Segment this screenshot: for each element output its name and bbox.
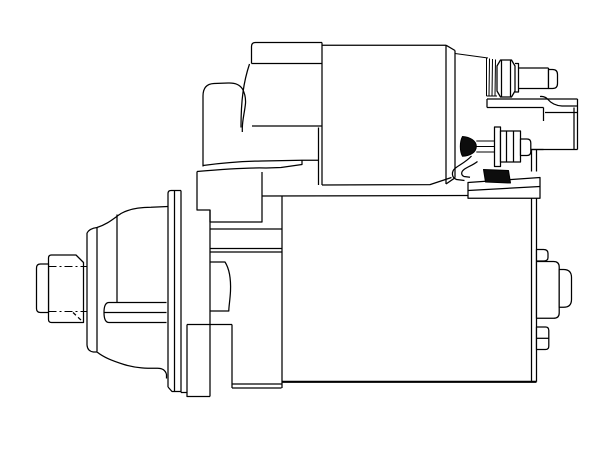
cable-inner-curve (462, 162, 478, 178)
drive-housing-slot (104, 303, 167, 323)
field-terminal-stud (460, 137, 476, 157)
serrated-washer-stack (455, 54, 497, 97)
drive-housing-front-rim (87, 228, 97, 353)
bracket-edge-lower (197, 160, 302, 171)
lower-terminal-hex-nut (501, 131, 521, 162)
drive-housing-top-contour (87, 207, 168, 234)
terminal-shelf-flap (540, 96, 578, 106)
battery-terminal-bolt-shank (519, 68, 549, 89)
battery-terminal-bolt-end (549, 70, 558, 89)
solenoid-cap-block (252, 43, 323, 127)
mounting-flange (168, 191, 187, 393)
end-cap-bearing-boss (537, 262, 560, 319)
rubber-boot (484, 170, 511, 184)
bottom-tab (187, 325, 210, 397)
solenoid-barrel (322, 45, 452, 185)
motor-yoke-top-edge (262, 196, 468, 197)
end-cap-bearing-nose (559, 270, 571, 308)
lower-terminal-washer (495, 127, 501, 167)
field-terminal-shaft (476, 141, 496, 152)
upper-terminal-hex-nut (497, 60, 515, 97)
pinion-guide-block (210, 262, 231, 311)
spline-collar (49, 255, 84, 323)
starter-motor-svg (0, 0, 612, 459)
under-step (232, 325, 282, 389)
starter-motor-technical-drawing (0, 0, 612, 459)
front-bracket-hump (203, 83, 246, 167)
drive-housing-bottom-contour (97, 352, 167, 379)
page-background (0, 0, 612, 459)
solenoid-end-cap (446, 45, 455, 184)
end-cap-upper-tab (537, 250, 549, 262)
gear-housing-block (197, 172, 262, 223)
drive-shaft-nose (37, 264, 49, 313)
lower-terminal-end (521, 139, 531, 156)
